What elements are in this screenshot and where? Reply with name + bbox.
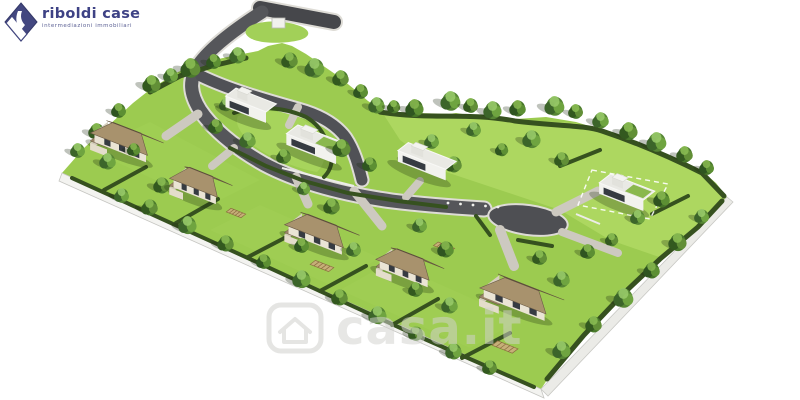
- tree-highlight: [309, 58, 319, 69]
- tree-highlight: [441, 241, 449, 250]
- tree-highlight: [233, 47, 241, 56]
- tree-highlight: [412, 326, 420, 334]
- tree-highlight: [357, 84, 365, 92]
- tree-highlight: [572, 104, 580, 112]
- tree-highlight: [445, 297, 453, 306]
- tree-highlight: [557, 271, 565, 280]
- tree-highlight: [74, 143, 82, 151]
- tree-highlight: [372, 97, 380, 106]
- tree-highlight: [549, 96, 559, 107]
- tree-highlight: [130, 143, 137, 150]
- tree-highlight: [624, 122, 633, 132]
- scene-svg: [0, 0, 800, 400]
- brand-tagline: intermediazioni immobiliari: [42, 23, 140, 29]
- tree-highlight: [488, 101, 497, 111]
- bollard: [447, 202, 450, 205]
- tree-highlight: [221, 235, 229, 244]
- bollard: [497, 206, 500, 209]
- tree-highlight: [584, 244, 592, 252]
- tree-highlight: [536, 250, 544, 258]
- tree-highlight: [486, 360, 494, 368]
- tree-highlight: [243, 132, 251, 141]
- tree-highlight: [416, 218, 424, 226]
- tree-highlight: [589, 316, 597, 325]
- tree-highlight: [428, 134, 436, 142]
- tree-highlight: [297, 270, 306, 280]
- tree-highlight: [327, 198, 335, 207]
- tree-highlight: [647, 262, 655, 271]
- tree-highlight: [557, 341, 566, 351]
- tree-highlight: [185, 58, 195, 69]
- listing-render-image: casa.it riboldi case intermediazioni imm…: [0, 0, 800, 400]
- tree-highlight: [337, 139, 346, 149]
- tree-highlight: [470, 122, 478, 130]
- tree-highlight: [390, 100, 397, 107]
- tree-highlight: [651, 132, 661, 143]
- tree-highlight: [298, 238, 306, 246]
- tree-highlight: [467, 98, 475, 106]
- tree-highlight: [157, 177, 165, 186]
- tree-highlight: [608, 233, 615, 240]
- tree-highlight: [596, 112, 604, 121]
- tree-highlight: [183, 216, 192, 226]
- tree-highlight: [260, 254, 268, 262]
- tree-highlight: [673, 233, 682, 243]
- tree-highlight: [513, 100, 521, 109]
- bollard: [472, 204, 475, 207]
- tree-highlight: [115, 103, 123, 111]
- tree-highlight: [449, 343, 457, 352]
- tree-highlight: [145, 199, 153, 208]
- diamond-ribbon-icon: [4, 2, 38, 42]
- tree-highlight: [445, 91, 455, 102]
- bollard: [459, 203, 462, 206]
- tree-highlight: [410, 99, 419, 109]
- tree-highlight: [118, 188, 126, 196]
- tree-highlight: [657, 191, 665, 200]
- tree-highlight: [680, 146, 688, 155]
- tree-highlight: [703, 160, 711, 168]
- tree-highlight: [350, 242, 358, 250]
- tree-highlight: [285, 52, 293, 61]
- tree-highlight: [103, 153, 111, 162]
- tree-highlight: [210, 54, 218, 62]
- tree-highlight: [498, 143, 505, 150]
- tree-highlight: [412, 282, 420, 290]
- tree-highlight: [634, 210, 642, 218]
- riboldi-case-logo: riboldi case intermediazioni immobiliari: [4, 2, 140, 42]
- tree-highlight: [212, 119, 220, 127]
- bollard: [484, 205, 487, 208]
- tree-highlight: [618, 288, 628, 299]
- tree-highlight: [366, 157, 374, 165]
- tree-highlight: [300, 182, 307, 189]
- tree-highlight: [527, 130, 536, 140]
- tree-highlight: [280, 149, 288, 157]
- tree-highlight: [698, 209, 706, 217]
- tree-highlight: [373, 306, 382, 316]
- road: [260, 8, 334, 22]
- tree-highlight: [167, 68, 175, 76]
- tree-highlight: [147, 75, 156, 85]
- utility-cabinet: [272, 18, 285, 28]
- logo-text: riboldi case intermediazioni immobiliari: [42, 2, 140, 29]
- brand-name: riboldi case: [42, 7, 140, 22]
- tree-highlight: [335, 289, 343, 298]
- tree-highlight: [336, 70, 344, 79]
- tree-highlight: [558, 152, 566, 160]
